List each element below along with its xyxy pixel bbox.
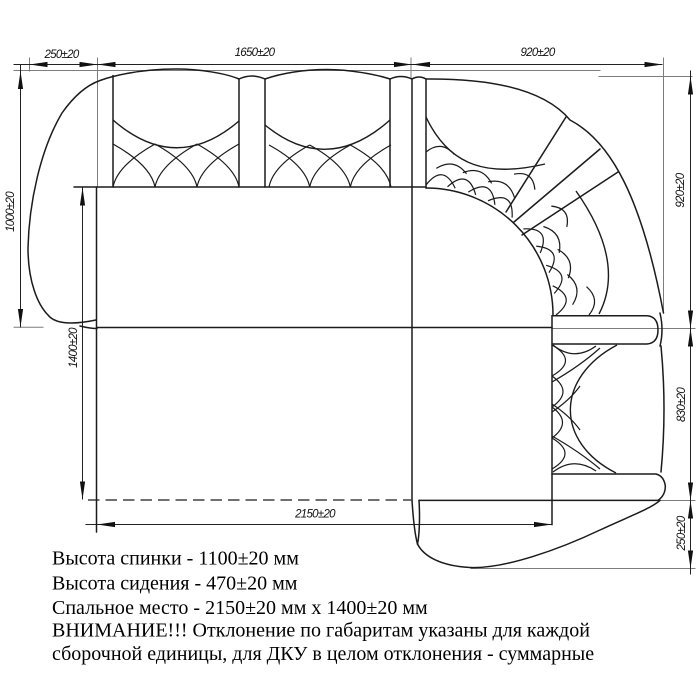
svg-text:920±20: 920±20 [520,47,555,59]
svg-text:830±20: 830±20 [676,387,688,422]
svg-text:ВНИМАНИЕ!!! Отклонение по габа: ВНИМАНИЕ!!! Отклонение по габаритам указ… [52,620,590,642]
svg-text:1650±20: 1650±20 [235,47,276,59]
svg-text:920±20: 920±20 [675,172,687,207]
svg-text:Высота сидения - 470±20 мм: Высота сидения - 470±20 мм [52,572,298,594]
svg-text:Высота спинки - 1100±20 мм: Высота спинки - 1100±20 мм [52,548,299,570]
svg-text:1000±20: 1000±20 [5,191,17,232]
svg-text:сборочной единицы, для ДКУ в ц: сборочной единицы, для ДКУ в целом откло… [52,643,594,665]
svg-text:250±20: 250±20 [676,515,688,551]
svg-text:Спальное место - 2150±20 мм x: Спальное место - 2150±20 мм x 1400±20 мм [52,597,428,619]
svg-text:1400±20: 1400±20 [68,327,80,368]
svg-text:2150±20: 2150±20 [294,509,336,521]
svg-text:250±20: 250±20 [43,49,79,61]
